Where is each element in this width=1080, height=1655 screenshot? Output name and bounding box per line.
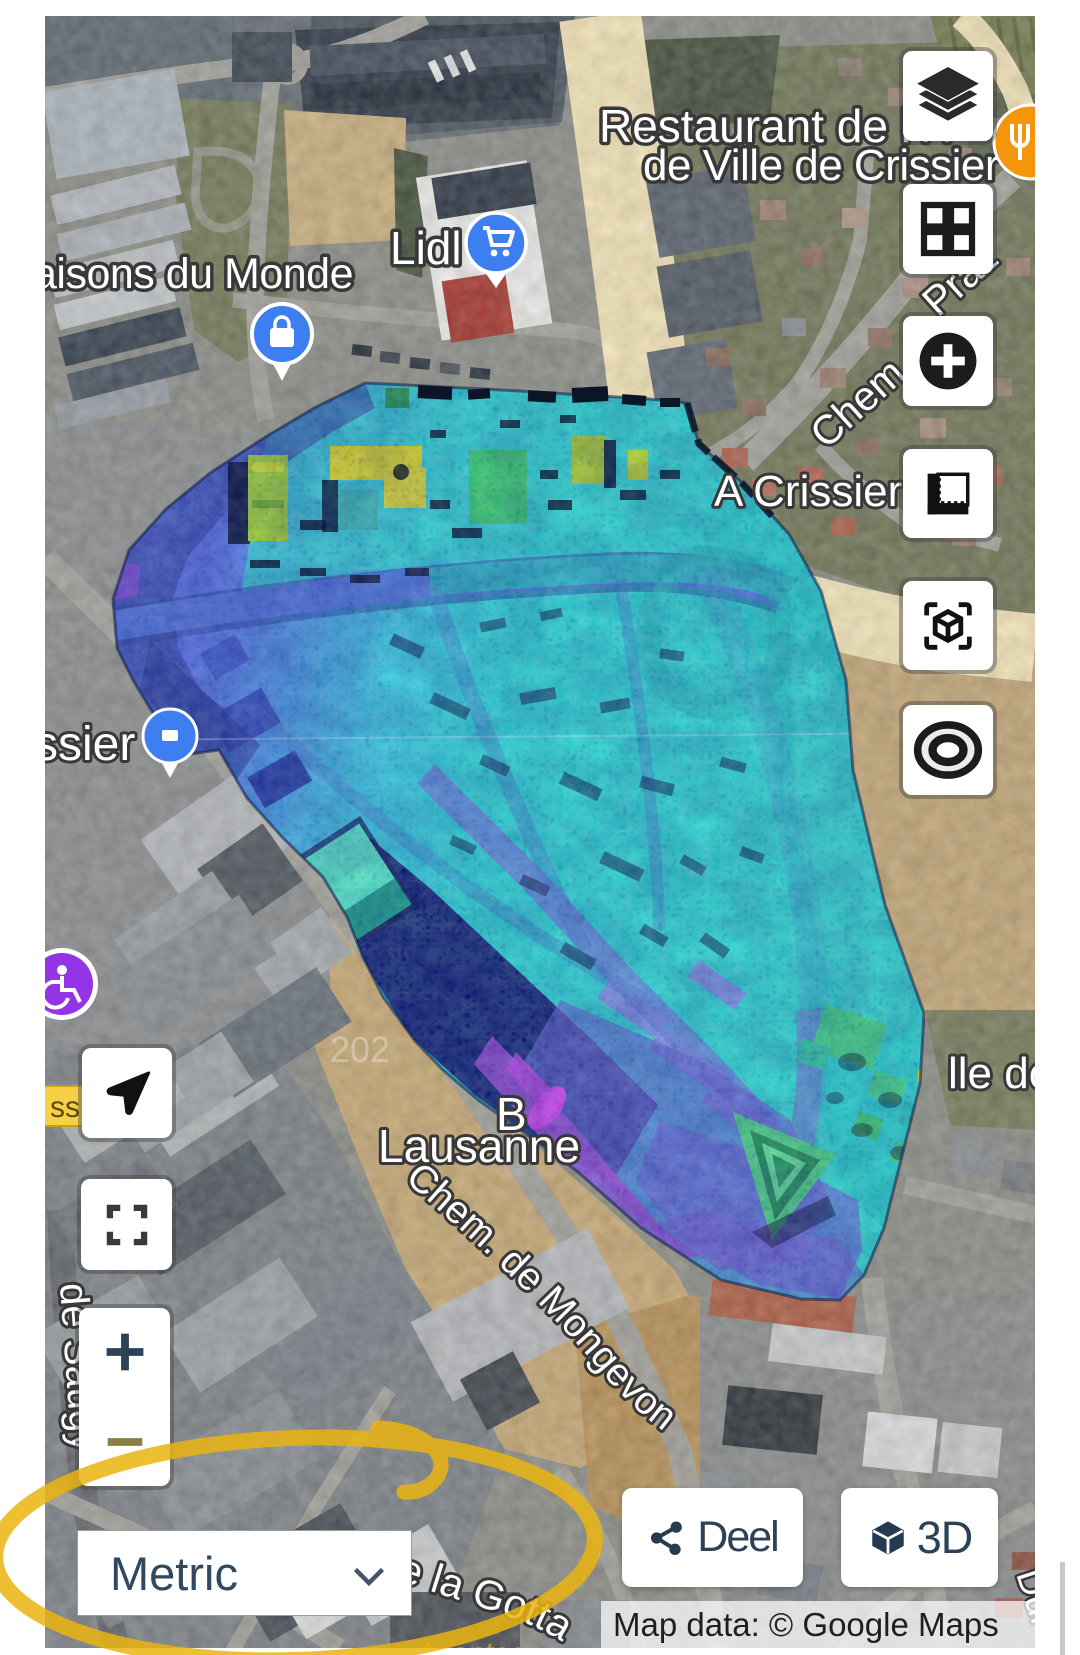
- svg-text:A Crissier: A Crissier: [714, 467, 902, 516]
- svg-text:aisons du Monde: aisons du Monde: [33, 250, 353, 298]
- svg-text:Lausanne: Lausanne: [378, 1120, 580, 1172]
- svg-text:ssier: ssier: [34, 718, 135, 771]
- svg-text:B: B: [496, 1088, 527, 1140]
- svg-text:de Ville de Crissier: de Ville de Crissier: [643, 141, 999, 190]
- svg-text:202: 202: [330, 1029, 390, 1070]
- svg-text:Lidl: Lidl: [390, 222, 462, 274]
